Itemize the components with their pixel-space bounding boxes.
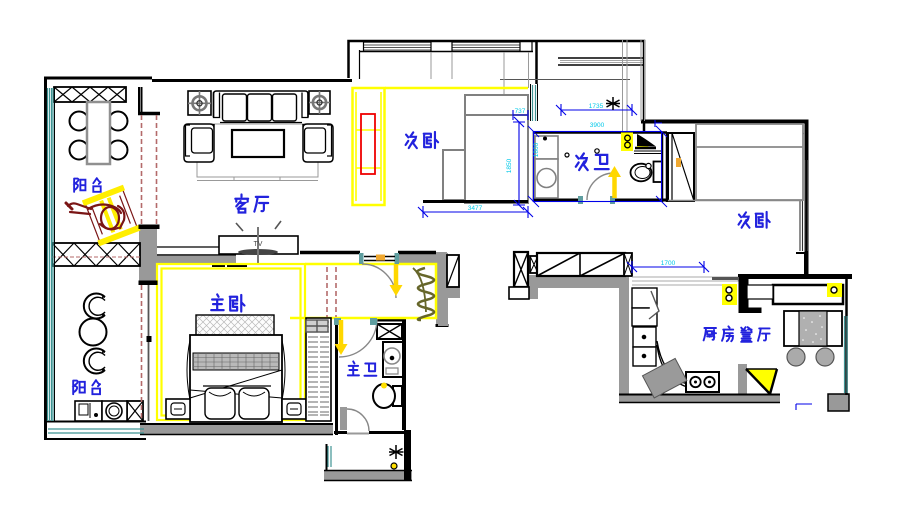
svg-text:1850: 1850 (506, 158, 513, 173)
svg-text:3477: 3477 (468, 205, 483, 212)
svg-text:1700: 1700 (661, 260, 676, 267)
svg-text:737: 737 (515, 108, 526, 115)
svg-text:3900: 3900 (590, 122, 605, 129)
svg-text:1735: 1735 (589, 103, 604, 110)
svg-text:1800: 1800 (533, 142, 540, 157)
svg-text:TV: TV (254, 241, 263, 248)
